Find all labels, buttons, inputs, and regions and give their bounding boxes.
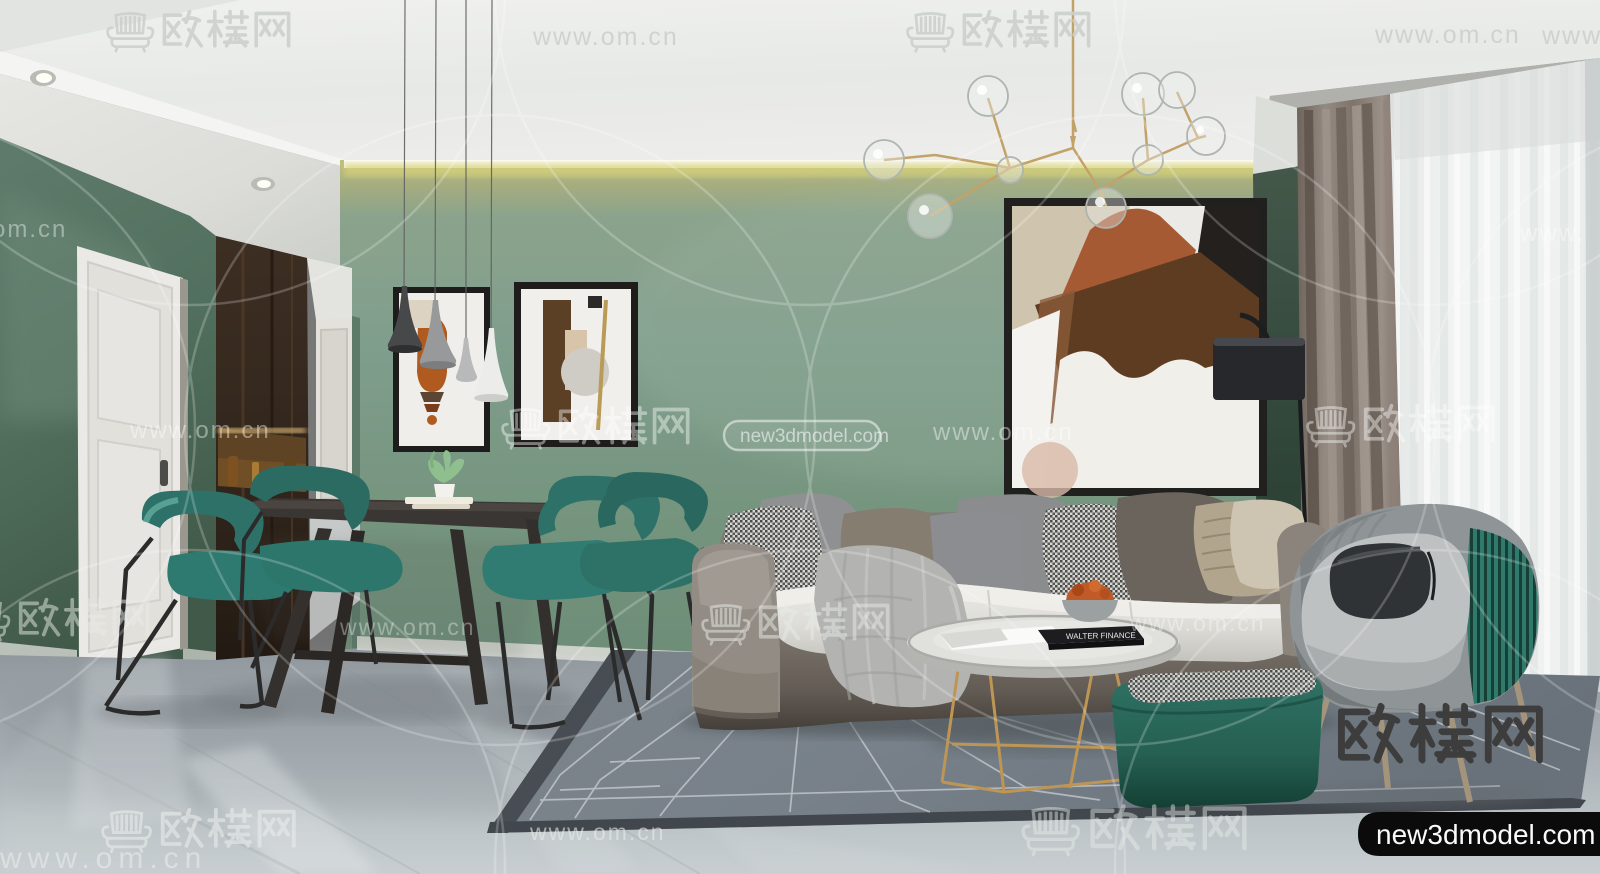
svg-text:www.om.cn: www.om.cn	[932, 419, 1074, 446]
svg-text:WALTER FINANCE: WALTER FINANCE	[1066, 631, 1136, 641]
svg-text:new3dmodel.com: new3dmodel.com	[1376, 819, 1595, 850]
svg-text:www.om.cn: www.om.cn	[339, 614, 476, 640]
svg-text:www.: www.	[1541, 22, 1600, 50]
svg-text:om.cn: om.cn	[0, 216, 67, 243]
svg-text:www.: www.	[1519, 220, 1585, 247]
svg-text:www.om.cn: www.om.cn	[0, 842, 207, 874]
svg-text:www.om.cn: www.om.cn	[529, 819, 666, 845]
svg-text:www.om.cn: www.om.cn	[129, 417, 271, 444]
svg-text:www.om.cn: www.om.cn	[1374, 21, 1521, 49]
svg-text:www.om.cn: www.om.cn	[1129, 610, 1266, 636]
svg-text:new3dmodel.com: new3dmodel.com	[740, 426, 889, 447]
svg-text:www.om.cn: www.om.cn	[532, 23, 679, 51]
